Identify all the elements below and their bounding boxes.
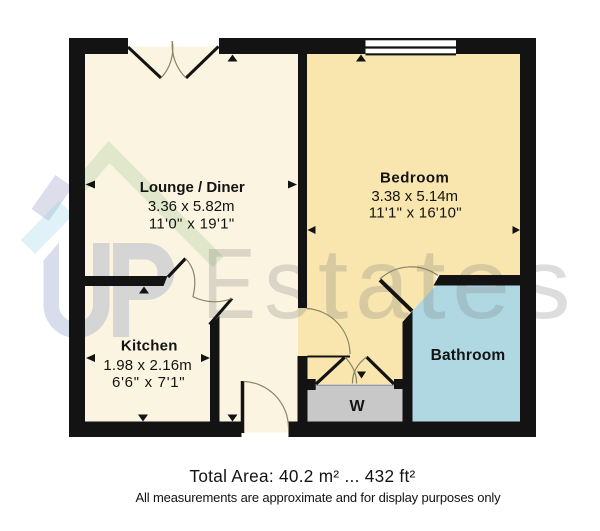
svg-text:Total Area: 40.2 m² ... 432 ft: Total Area: 40.2 m² ... 432 ft² bbox=[189, 466, 415, 486]
svg-text:6'6" x 7'1": 6'6" x 7'1" bbox=[112, 374, 185, 391]
svg-text:1.98 x 2.16m: 1.98 x 2.16m bbox=[103, 357, 192, 374]
svg-text:3.36 x 5.82m: 3.36 x 5.82m bbox=[148, 198, 235, 215]
svg-text:Bedroom: Bedroom bbox=[380, 170, 449, 187]
svg-text:W: W bbox=[349, 398, 365, 415]
svg-text:11'1" x 16'10": 11'1" x 16'10" bbox=[369, 205, 462, 222]
svg-text:t: t bbox=[318, 229, 349, 340]
svg-text:3.38 x 5.14m: 3.38 x 5.14m bbox=[371, 188, 458, 205]
svg-text:Kitchen: Kitchen bbox=[121, 338, 178, 355]
svg-text:Bathroom: Bathroom bbox=[431, 347, 506, 364]
svg-text:Lounge / Diner: Lounge / Diner bbox=[140, 179, 245, 196]
svg-text:All measurements are approxima: All measurements are approximate and for… bbox=[135, 490, 501, 505]
svg-text:11'0" x 19'1": 11'0" x 19'1" bbox=[149, 216, 235, 233]
